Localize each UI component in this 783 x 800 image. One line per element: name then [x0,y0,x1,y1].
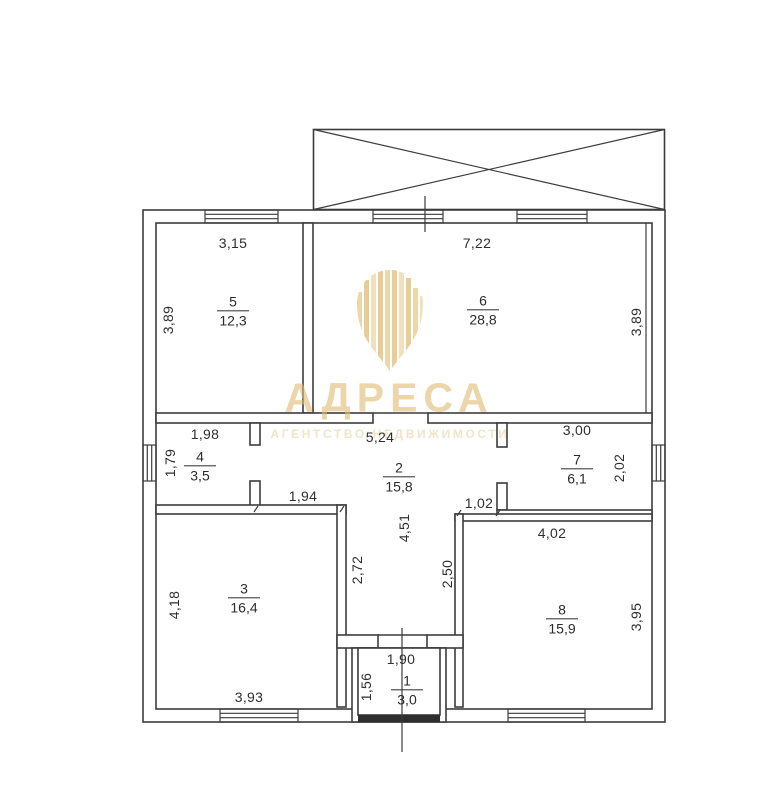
dim-room7-right: 2,02 [611,454,627,482]
fraction-line [383,476,415,477]
dim-room3-left: 4,18 [166,591,182,619]
dim-room6-right: 3,89 [628,308,644,336]
terrace-outline [314,130,665,210]
room1-number: 1 [403,673,411,688]
dim-corridor-left: 2,72 [349,556,365,584]
room7-number: 7 [573,452,581,467]
fraction-line [467,309,499,310]
room3-area: 16,4 [230,600,257,615]
fraction-line [228,597,260,598]
dim-room5-left: 3,89 [160,306,176,334]
dim-corridor-right: 2,50 [439,560,455,588]
dim-hall-top: 5,24 [366,429,394,445]
dim-room3-bottom: 3,93 [235,689,263,705]
room2-area: 15,8 [385,479,412,494]
room8-number: 8 [558,602,566,617]
room2-number: 2 [395,460,403,475]
room-label-5: 5 12,3 [217,294,249,327]
dim-room4-left: 1,79 [162,449,178,477]
fraction-line [546,618,578,619]
room-label-2: 2 15,8 [383,460,415,493]
dim-hall-mid: 4,51 [396,514,412,542]
fraction-line [184,465,216,466]
dim-room1-left: 1,56 [358,673,374,701]
dim-shoulder-left: 1,94 [289,488,317,504]
dim-room7-top: 3,00 [563,422,591,438]
fraction-line [217,310,249,311]
room-label-3: 3 16,4 [228,581,260,614]
dim-shoulder-right: 1,02 [465,495,493,511]
dim-room6-top: 7,22 [463,235,491,251]
dim-room1-top: 1,90 [387,651,415,667]
room6-number: 6 [479,293,487,308]
room-label-6: 6 28,8 [467,293,499,326]
room8-area: 15,9 [548,621,575,636]
fraction-line [561,468,593,469]
room5-number: 5 [229,294,237,309]
dim-room5-top: 3,15 [219,235,247,251]
room-label-1: 1 3,0 [391,673,423,706]
room-label-4: 4 3,5 [184,449,216,482]
room-label-7: 7 6,1 [561,452,593,485]
floorplan-image: АДРЕСА АГЕНТСТВО НЕДВИЖИМОСТИ 3,15 7,22 … [0,0,783,800]
room1-area: 3,0 [397,692,416,707]
room-label-8: 8 15,9 [546,602,578,635]
room4-number: 4 [196,449,204,464]
dim-room8-top: 4,02 [538,525,566,541]
dim-room4-top: 1,98 [191,426,219,442]
dim-room8-right: 3,95 [628,603,644,631]
fraction-line [391,689,423,690]
room6-area: 28,8 [469,312,496,327]
room7-area: 6,1 [567,471,586,486]
room5-area: 12,3 [219,313,246,328]
room3-number: 3 [240,581,248,596]
room4-area: 3,5 [190,468,209,483]
